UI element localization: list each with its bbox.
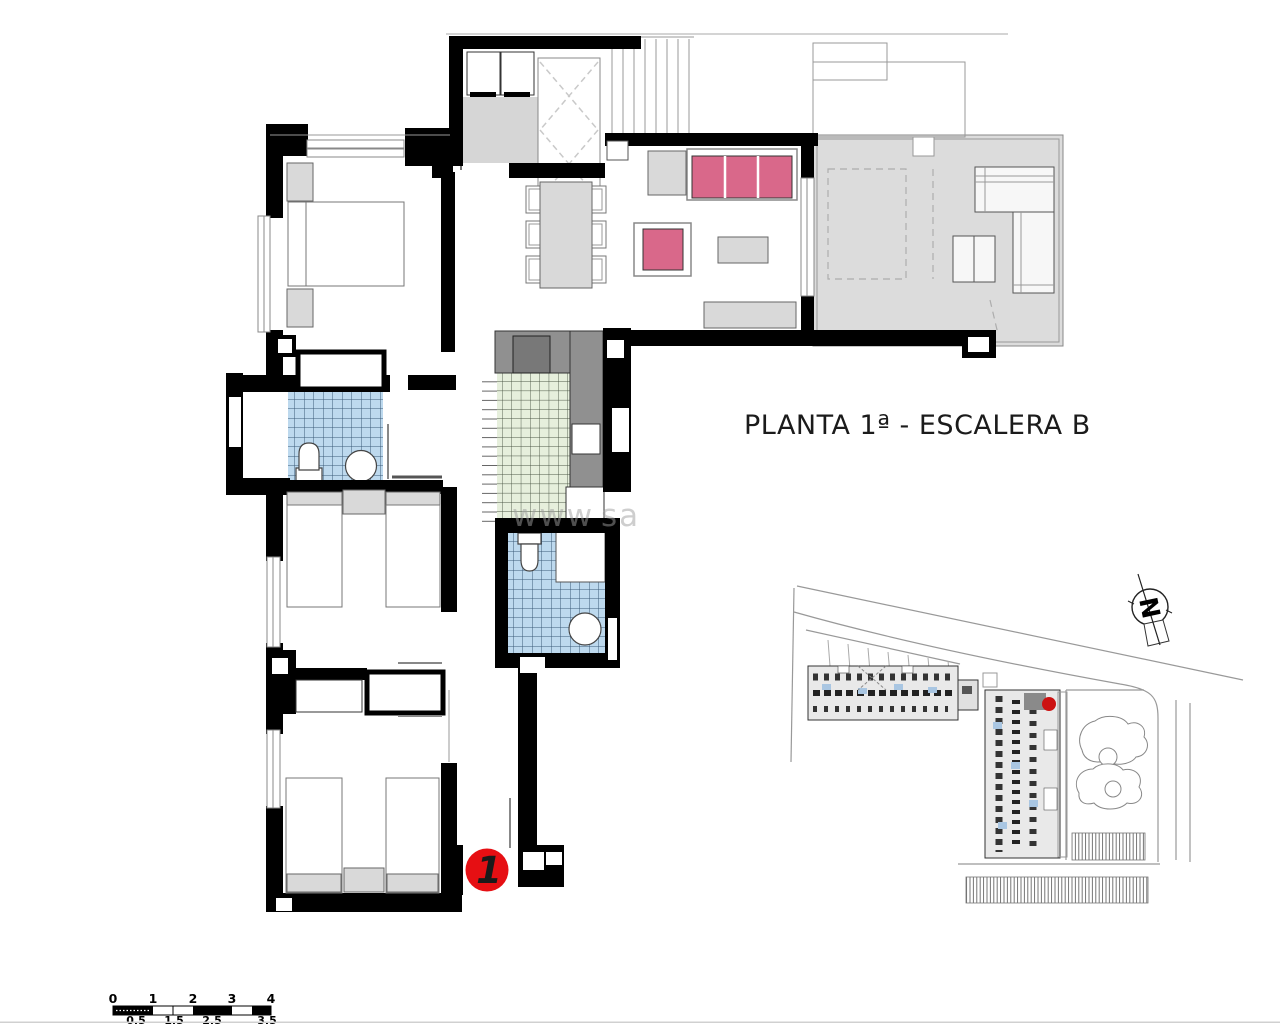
elevator-car [467, 52, 500, 95]
closet [296, 680, 362, 712]
single-bed [386, 505, 440, 607]
site-building-2 [985, 690, 1060, 858]
bathroom-2 [508, 532, 605, 653]
terrace-table [953, 236, 995, 282]
site-building-1 [808, 666, 978, 720]
double-bed [288, 202, 404, 286]
page-bottom-rule [0, 1022, 1280, 1024]
kitchen-appliance [513, 336, 550, 373]
site-unit-dot [1042, 697, 1056, 711]
watermark-part1: www [512, 498, 594, 534]
bedroom-1 [287, 163, 404, 389]
page-title: PLANTA 1ª - ESCALERA B [744, 410, 1091, 441]
headboard [386, 492, 440, 505]
stairs [609, 37, 694, 133]
scale-tick: 2 [189, 991, 198, 1006]
closet [367, 672, 443, 713]
nightstand [287, 289, 313, 327]
washbasin [346, 451, 377, 482]
bedroom-2 [287, 490, 443, 716]
nightstand [287, 163, 313, 201]
site-hatch-strip [966, 877, 1148, 903]
unit-marker: 1 [466, 849, 509, 893]
kitchen-sink-unit [572, 424, 600, 454]
site-pool [1076, 716, 1147, 809]
single-bed [287, 505, 342, 607]
dining-table [540, 182, 592, 288]
site-hatch-strip [1072, 833, 1145, 860]
sofa [687, 149, 797, 200]
site-plan [791, 586, 1243, 903]
coffee-table [718, 237, 768, 263]
nightstand [344, 868, 384, 892]
scale-bar: 0 1 2 3 4 0.5 1.5 2.5 3.5 [109, 991, 277, 1024]
toilet [518, 533, 541, 544]
washbasin [569, 613, 601, 645]
side-table [648, 151, 686, 195]
scale-tick: 3 [228, 991, 237, 1006]
watermark-part2: sa [601, 498, 640, 534]
kitchen [482, 331, 605, 524]
bedroom-3 [286, 778, 439, 893]
headboard [287, 492, 342, 505]
terrace-opening [913, 137, 934, 156]
bathroom-1 [288, 390, 442, 486]
nightstand [343, 490, 385, 514]
shaft [538, 58, 600, 200]
scale-tick: 4 [267, 991, 276, 1006]
floorplan-page: 1 [0, 0, 1280, 1024]
sideboard [704, 302, 796, 328]
shower [556, 532, 605, 582]
north-arrow-icon: N [1128, 574, 1172, 646]
north-label: N [1133, 595, 1166, 622]
armchair [634, 223, 691, 276]
unit-number: 1 [476, 849, 502, 892]
landing [455, 97, 540, 163]
wardrobe [298, 352, 384, 389]
elevator-car [501, 52, 534, 95]
scale-tick: 0 [109, 991, 118, 1006]
scale-tick: 1 [149, 991, 158, 1006]
